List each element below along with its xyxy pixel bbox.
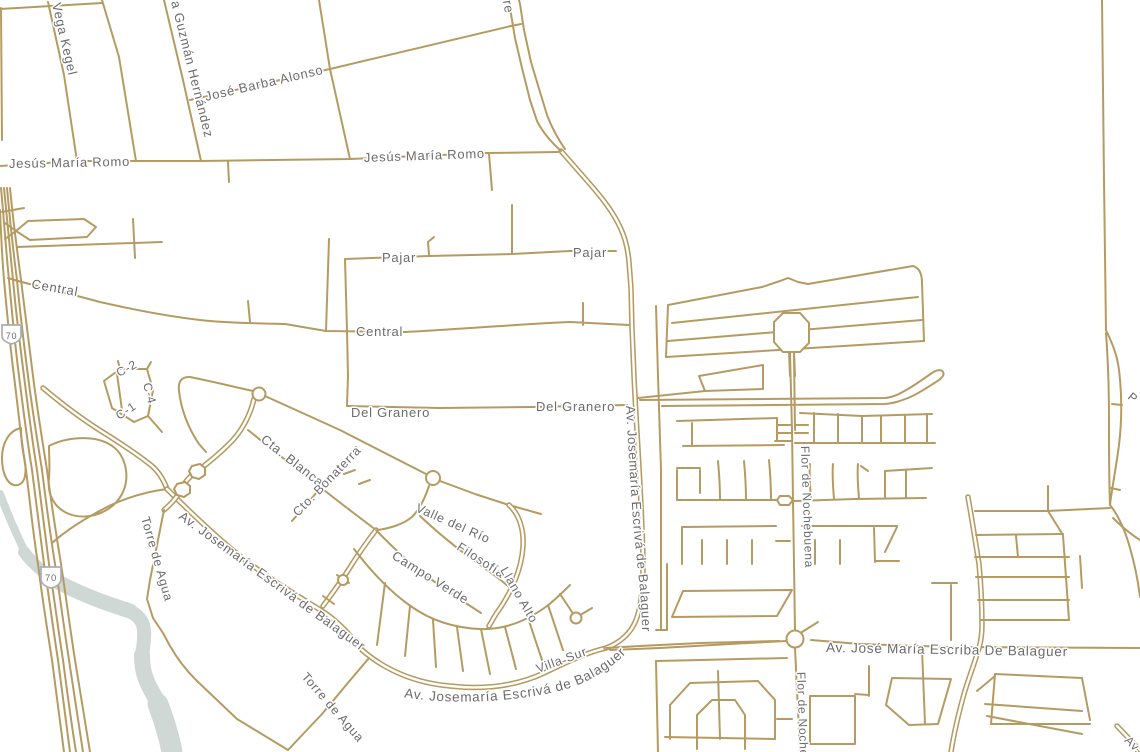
svg-text:Pajar: Pajar [382,250,416,265]
svg-text:Del Granero: Del Granero [351,405,430,420]
svg-text:re: re [500,0,517,14]
svg-text:Jesús María Romo: Jesús María Romo [9,154,130,171]
svg-text:Pajar: Pajar [573,245,607,260]
svg-text:Central: Central [356,324,403,339]
svg-text:70: 70 [6,331,18,341]
svg-text:Del Granero: Del Granero [536,399,615,414]
svg-text:70: 70 [45,573,57,584]
